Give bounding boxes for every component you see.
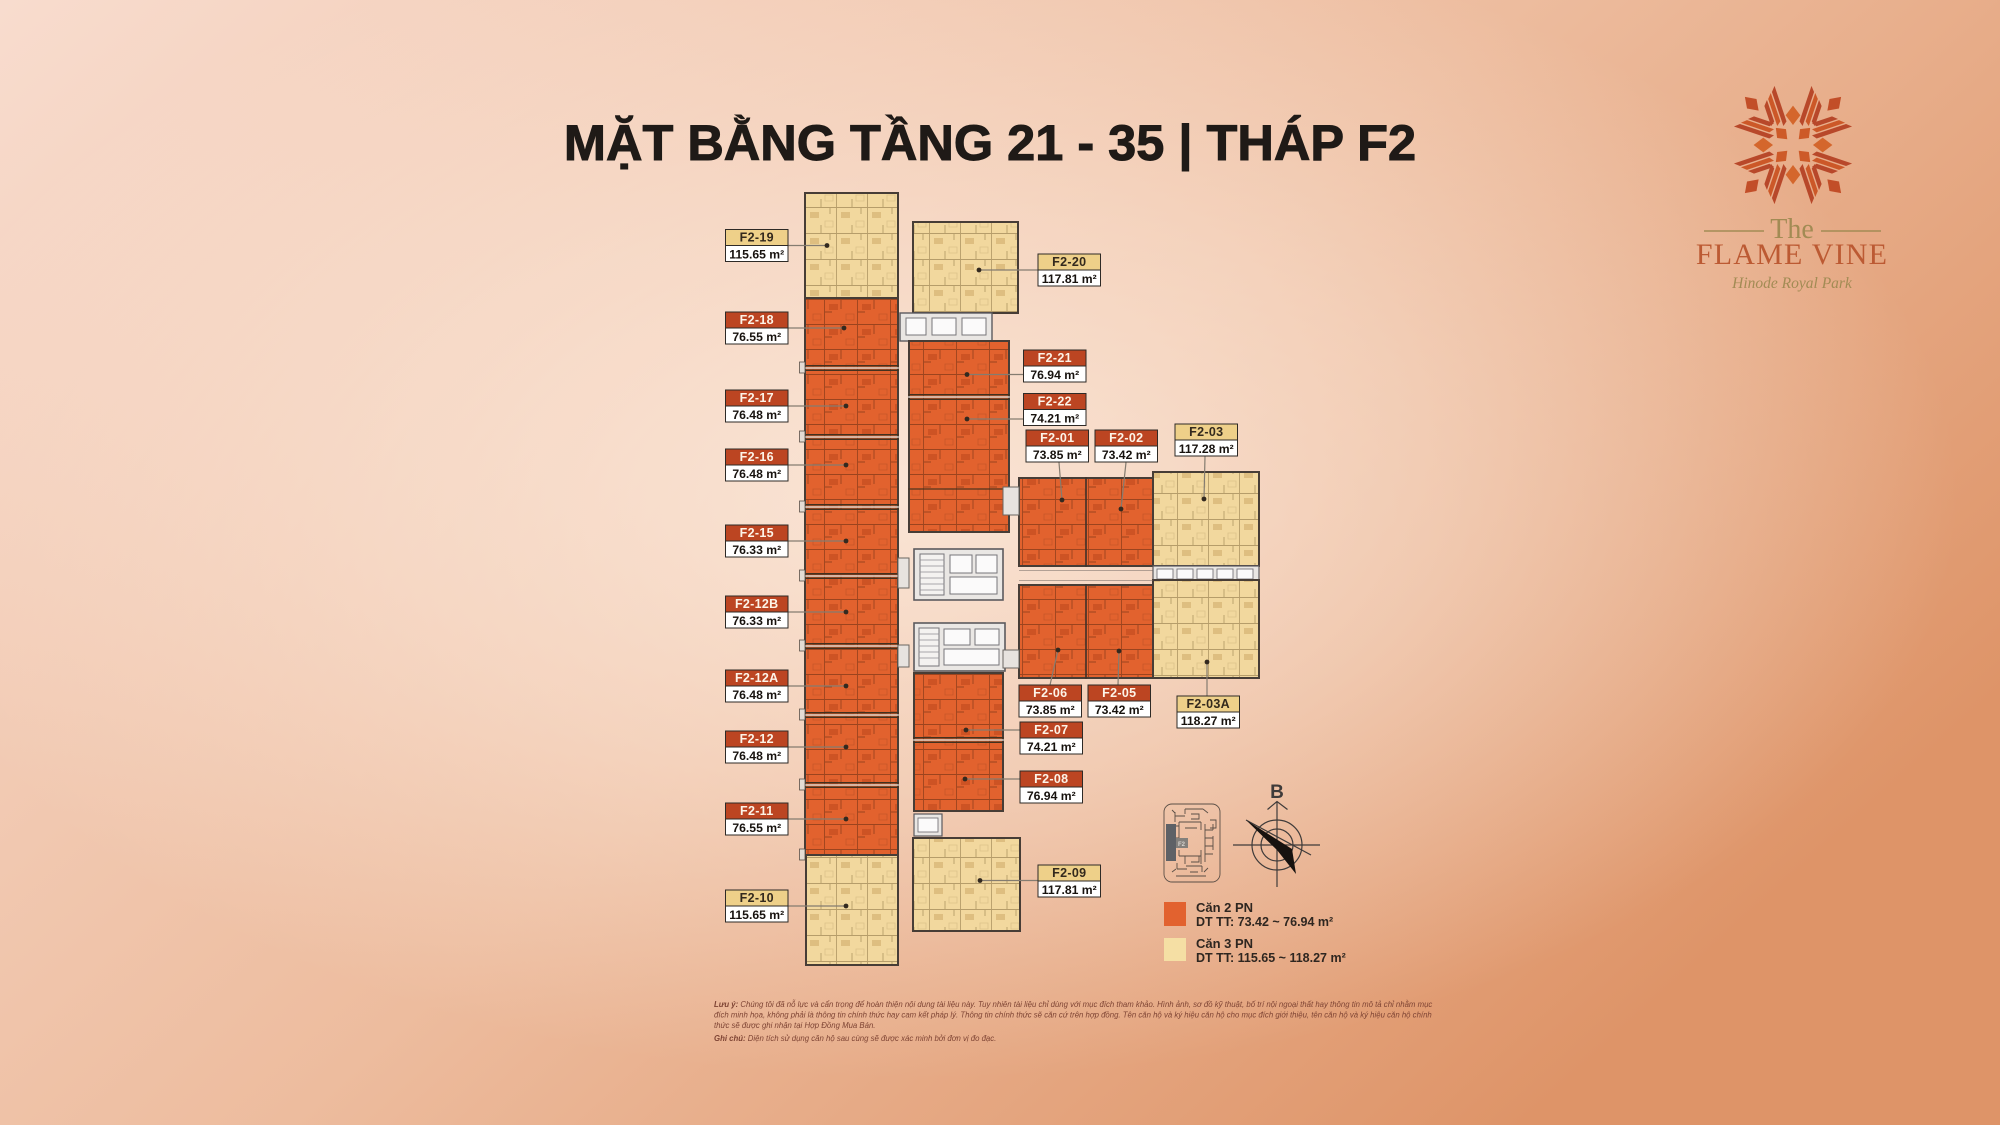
svg-text:117.81 m²: 117.81 m² xyxy=(1042,883,1097,897)
svg-text:76.33 m²: 76.33 m² xyxy=(732,614,781,628)
svg-text:F2-15: F2-15 xyxy=(740,526,774,540)
svg-text:F2-12B: F2-12B xyxy=(735,597,778,611)
svg-text:F2-03A: F2-03A xyxy=(1187,697,1230,711)
svg-text:F2-08: F2-08 xyxy=(1034,772,1068,786)
svg-text:F2-07: F2-07 xyxy=(1034,723,1068,737)
svg-text:F2-01: F2-01 xyxy=(1040,431,1074,445)
svg-text:F2-21: F2-21 xyxy=(1038,351,1072,365)
svg-text:Hinode Royal Park: Hinode Royal Park xyxy=(1731,275,1853,292)
svg-text:74.21 m²: 74.21 m² xyxy=(1030,411,1079,425)
svg-text:118.27 m²: 118.27 m² xyxy=(1181,714,1236,728)
svg-text:76.55 m²: 76.55 m² xyxy=(732,821,781,835)
svg-text:115.65 m²: 115.65 m² xyxy=(729,247,784,261)
svg-text:76.94 m²: 76.94 m² xyxy=(1030,368,1079,382)
svg-text:73.85 m²: 73.85 m² xyxy=(1026,703,1075,717)
svg-text:Lưu ý: Chúng tôi đã nỗ lực và: Lưu ý: Chúng tôi đã nỗ lực và cẩn trọng … xyxy=(714,1000,1432,1009)
svg-text:117.81 m²: 117.81 m² xyxy=(1042,272,1097,286)
svg-text:73.42 m²: 73.42 m² xyxy=(1095,703,1144,717)
svg-text:F2-12: F2-12 xyxy=(740,732,774,746)
svg-text:Căn 2 PN: Căn 2 PN xyxy=(1196,900,1253,915)
svg-text:DT TT: 115.65 ~ 118.27 m²: DT TT: 115.65 ~ 118.27 m² xyxy=(1196,951,1346,965)
svg-text:F2-22: F2-22 xyxy=(1038,395,1072,409)
svg-text:F2-06: F2-06 xyxy=(1033,686,1067,700)
svg-text:MẶT BẰNG TẦNG 21 - 35 | THÁP F: MẶT BẰNG TẦNG 21 - 35 | THÁP F2 xyxy=(564,114,1416,172)
svg-text:F2-16: F2-16 xyxy=(740,450,774,464)
svg-text:F2-02: F2-02 xyxy=(1109,431,1143,445)
svg-text:FLAME VINE: FLAME VINE xyxy=(1696,238,1888,271)
svg-text:thức sẽ được ghi nhận tại Hợp: thức sẽ được ghi nhận tại Hợp Đồng Mua B… xyxy=(714,1021,875,1030)
svg-text:76.48 m²: 76.48 m² xyxy=(732,467,781,481)
svg-text:76.55 m²: 76.55 m² xyxy=(732,330,781,344)
svg-text:F2-10: F2-10 xyxy=(740,891,774,905)
svg-text:F2-18: F2-18 xyxy=(740,313,774,327)
svg-text:76.94 m²: 76.94 m² xyxy=(1027,789,1076,803)
svg-text:76.48 m²: 76.48 m² xyxy=(732,749,781,763)
svg-text:F2-11: F2-11 xyxy=(740,804,773,818)
svg-text:F2-12A: F2-12A xyxy=(735,671,778,685)
svg-text:đích minh họa, không phải là t: đích minh họa, không phải là thông tin c… xyxy=(714,1011,1432,1020)
svg-text:73.85 m²: 73.85 m² xyxy=(1033,448,1082,462)
svg-text:73.42 m²: 73.42 m² xyxy=(1102,448,1151,462)
svg-text:F2-09: F2-09 xyxy=(1052,866,1086,880)
svg-text:F2-05: F2-05 xyxy=(1102,686,1136,700)
svg-text:76.33 m²: 76.33 m² xyxy=(732,543,781,557)
svg-text:F2: F2 xyxy=(1178,842,1186,848)
svg-text:Căn 3 PN: Căn 3 PN xyxy=(1196,936,1253,951)
svg-text:Ghi chú: Diện tích sử dụng căn: Ghi chú: Diện tích sử dụng căn hộ sau cù… xyxy=(714,1034,996,1043)
svg-text:115.65 m²: 115.65 m² xyxy=(729,908,784,922)
svg-text:DT TT: 73.42 ~ 76.94 m²: DT TT: 73.42 ~ 76.94 m² xyxy=(1196,915,1333,929)
svg-text:76.48 m²: 76.48 m² xyxy=(732,688,781,702)
svg-text:F2-17: F2-17 xyxy=(740,391,774,405)
svg-text:F2-20: F2-20 xyxy=(1052,255,1086,269)
svg-text:117.28 m²: 117.28 m² xyxy=(1179,442,1234,456)
svg-text:F2-19: F2-19 xyxy=(740,231,774,245)
svg-text:74.21 m²: 74.21 m² xyxy=(1027,740,1076,754)
svg-text:F2-03: F2-03 xyxy=(1189,425,1223,439)
svg-text:76.48 m²: 76.48 m² xyxy=(732,408,781,422)
svg-text:B: B xyxy=(1270,782,1284,803)
